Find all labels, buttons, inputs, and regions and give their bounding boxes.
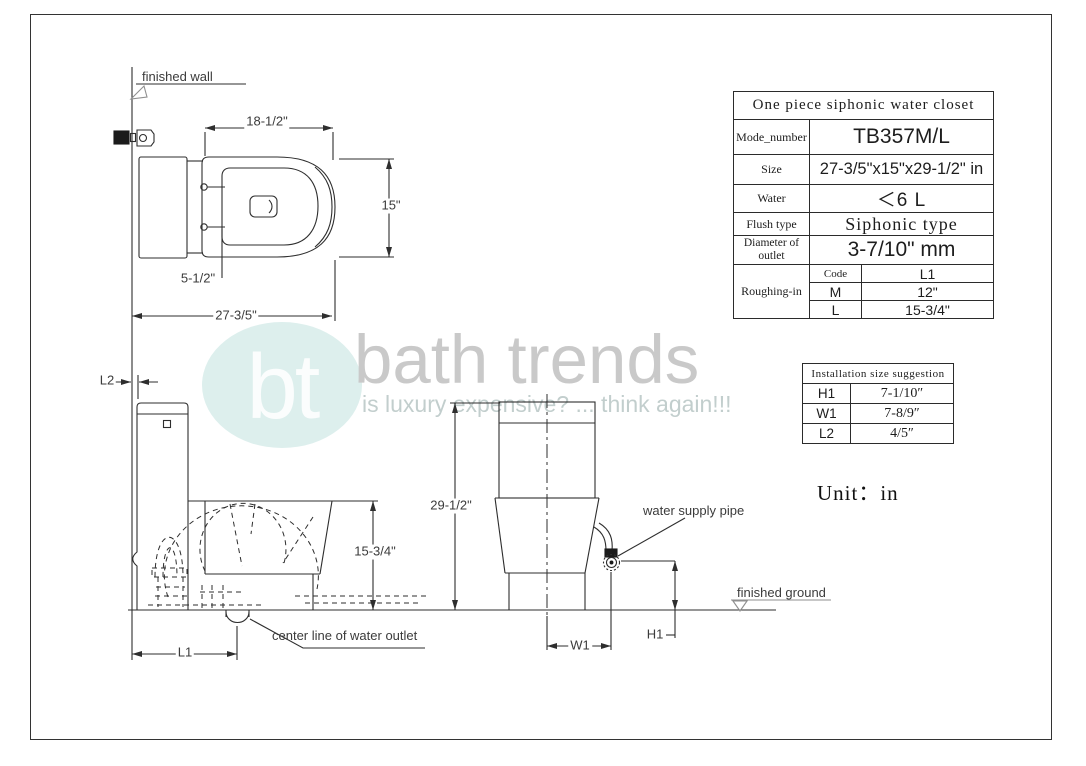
dim-seat-width: 18-1/2" bbox=[244, 115, 289, 130]
install-value-h1: 7-1/10″ bbox=[851, 384, 954, 404]
dim-l2: L2 bbox=[98, 374, 116, 389]
install-label-h1: H1 bbox=[803, 384, 851, 404]
roughing-in-value-m: 12" bbox=[862, 283, 994, 301]
install-label-l2: L2 bbox=[803, 424, 851, 444]
install-label-w1: W1 bbox=[803, 404, 851, 424]
spec-table-title: One piece siphonic water closet bbox=[734, 92, 994, 120]
dim-bowl-width: 15" bbox=[379, 199, 402, 214]
dim-h1: H1 bbox=[645, 628, 666, 643]
shut-off-valve-icon bbox=[114, 130, 154, 146]
roughing-in-code-l: L bbox=[810, 301, 862, 319]
spec-table: One piece siphonic water closet Mode_num… bbox=[733, 91, 994, 319]
plan-view bbox=[139, 157, 335, 278]
install-value-w1: 7-8/9″ bbox=[851, 404, 954, 424]
dim-rim-height: 15-3/4" bbox=[352, 545, 397, 560]
spec-value-size: 27-3/5"x15"x29-1/2" in bbox=[810, 155, 994, 185]
center-line-of-water-outlet-label: center line of water outlet bbox=[272, 628, 417, 643]
flush-button bbox=[250, 196, 277, 217]
water-supply-pipe-label: water supply pipe bbox=[643, 503, 744, 518]
roughing-in-code-m: M bbox=[810, 283, 862, 301]
supply-leader bbox=[618, 518, 685, 556]
seat-inner-ring bbox=[222, 168, 318, 245]
spec-label-size: Size bbox=[734, 155, 810, 185]
dim-w1: W1 bbox=[568, 639, 592, 654]
flush-button-side bbox=[164, 421, 171, 428]
finished-wall-label: finished wall bbox=[142, 69, 213, 84]
spec-label-flush-type: Flush type bbox=[734, 213, 810, 236]
roughing-in-value-l: 15-3/4" bbox=[862, 301, 994, 319]
spec-value-flush-type: Siphonic type bbox=[810, 213, 994, 236]
spec-label-mode-number: Mode_number bbox=[734, 120, 810, 155]
install-value-l2: 4/5″ bbox=[851, 424, 954, 444]
spec-label-water: Water bbox=[734, 185, 810, 213]
roughing-in-code-header: Code bbox=[810, 265, 862, 283]
wall-arrow-icon bbox=[131, 86, 147, 99]
spec-value-mode-number: TB357M/L bbox=[810, 120, 994, 155]
spec-label-diameter: Diameter of outlet bbox=[734, 236, 810, 265]
tank-side bbox=[133, 403, 188, 610]
installation-table-title: Installation size suggestion bbox=[803, 364, 954, 384]
l2-dimension bbox=[113, 375, 158, 399]
side-view bbox=[133, 403, 428, 610]
spec-label-roughing-in: Roughing-in bbox=[734, 265, 810, 319]
tank-plan bbox=[139, 157, 187, 258]
roughing-in-l1-header: L1 bbox=[862, 265, 994, 283]
installation-table: Installation size suggestion H1 7-1/10″ … bbox=[802, 363, 954, 444]
unit-label: Unit：in bbox=[817, 477, 899, 507]
dim-bolt-offset: 5-1/2" bbox=[179, 272, 217, 287]
dim-total-height: 29-1/2" bbox=[428, 499, 473, 514]
dim-total-length: 27-3/5" bbox=[213, 309, 258, 324]
dim-l1: L1 bbox=[176, 646, 194, 661]
finished-ground-label: finished ground bbox=[737, 585, 826, 600]
spec-sheet-page: bt bath trends is luxury expensive? ... … bbox=[0, 0, 1086, 766]
plan-dimensions bbox=[132, 125, 394, 321]
spec-value-water: ＜6 L bbox=[810, 185, 994, 213]
spec-value-diameter: 3-7/10" mm bbox=[810, 236, 994, 265]
